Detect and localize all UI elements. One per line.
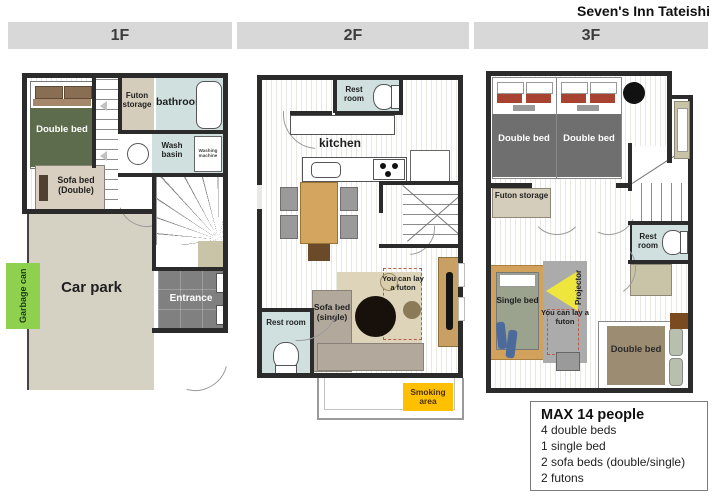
restroom-top-label: Rest room xyxy=(337,86,371,104)
wall xyxy=(628,260,690,264)
door-panel xyxy=(677,108,688,152)
spiral-stairs xyxy=(156,177,224,245)
wall xyxy=(333,80,337,113)
plan-1f: Futon storage bathroom Wash basin Washin… xyxy=(22,73,228,395)
futon-note-3f: You can lay a futon xyxy=(541,309,589,326)
car-park: Car park xyxy=(27,214,154,390)
round-side-table xyxy=(623,82,645,104)
restroom-2f-top: Rest room xyxy=(335,80,399,113)
wall xyxy=(458,75,463,378)
duvet-gray: Double bed xyxy=(557,114,621,177)
double-bed-left-label: Double bed xyxy=(492,134,556,145)
floorplan-screenshot: Seven's Inn Tateishi 1F 2F 3F Futon stor… xyxy=(0,0,720,498)
bathroom-room: bathroom xyxy=(156,78,223,130)
pillow xyxy=(669,328,683,356)
bathroom-label: bathroom xyxy=(156,97,200,109)
wall xyxy=(616,183,632,188)
entrance-label: Entrance xyxy=(158,293,224,304)
window xyxy=(458,297,465,321)
pillow xyxy=(497,82,524,94)
duvet-taupe: Double bed xyxy=(607,326,665,385)
wall xyxy=(152,328,228,333)
pillow xyxy=(499,274,536,287)
wall xyxy=(22,73,228,78)
sink-icon xyxy=(127,143,149,165)
burner-icon xyxy=(380,163,386,169)
bench-seat xyxy=(308,244,330,261)
futon-storage-3f-label: Futon storage xyxy=(493,192,550,201)
plan-2f: Rest room kitchen xyxy=(257,75,463,378)
chair xyxy=(340,187,358,211)
shoe-closet xyxy=(198,241,223,269)
burner-icon xyxy=(392,163,398,169)
window xyxy=(257,185,262,209)
wall xyxy=(486,183,532,188)
wall xyxy=(399,80,403,113)
wall xyxy=(92,78,96,168)
washing-machine-label: Washing machine xyxy=(195,148,221,158)
double-bed-label: Double bed xyxy=(30,125,94,136)
headboard-cabinet xyxy=(670,313,688,329)
info-line: 2 sofa beds (double/single) xyxy=(541,455,697,471)
chair-blue xyxy=(505,330,517,359)
wall xyxy=(379,181,383,213)
futon-storage-label: Futon storage xyxy=(120,92,154,110)
car-park-label: Car park xyxy=(29,280,154,297)
restroom-3f: Rest room xyxy=(630,223,692,264)
pillow xyxy=(64,86,92,99)
wall xyxy=(118,130,223,134)
round-table xyxy=(355,296,396,337)
kitchen-island xyxy=(302,157,407,182)
washroom: Wash basin Washing machine xyxy=(122,134,223,173)
entrance: Entrance xyxy=(158,269,224,329)
header-2f: 2F xyxy=(237,22,469,49)
wall xyxy=(257,75,463,80)
plan-3f: Double bed Double bed Futon storage Rest… xyxy=(486,71,693,393)
pillow-red xyxy=(590,94,615,103)
single-bed-label: Single bed xyxy=(491,296,544,305)
wall xyxy=(223,73,228,333)
garbage-can-tag: Garbage can xyxy=(6,263,40,329)
restroom-3f-label: Rest room xyxy=(632,233,664,251)
futon-storage-room: Futon storage xyxy=(120,78,154,130)
sofa-bed-single-chaise xyxy=(317,343,424,371)
info-line: 1 single bed xyxy=(541,439,697,455)
wall xyxy=(118,78,122,133)
balcony-door-closet xyxy=(674,101,690,159)
double-bed-bottom-label: Double bed xyxy=(607,344,665,354)
stair-arrow-icon xyxy=(100,101,107,111)
wall xyxy=(379,244,463,248)
page-title: Seven's Inn Tateishi xyxy=(577,3,710,19)
wall xyxy=(335,111,403,115)
smoking-area-tag: Smoking area xyxy=(403,383,453,411)
wash-basin-label: Wash basin xyxy=(152,142,192,160)
smoking-area-label: Smoking area xyxy=(408,388,448,407)
pillow xyxy=(526,82,553,94)
stairs-3f xyxy=(632,183,687,221)
stove xyxy=(373,159,405,180)
double-bed-right-label: Double bed xyxy=(557,134,621,145)
bed-tray xyxy=(577,105,599,111)
bed-runner xyxy=(33,99,91,106)
wall xyxy=(152,267,224,271)
chair xyxy=(340,215,358,239)
single-bed: Single bed xyxy=(490,265,545,360)
kitchen-counter xyxy=(290,115,395,135)
sofa-bed-double-label: Sofa bed (Double) xyxy=(50,176,102,196)
dining-table xyxy=(300,182,338,244)
pillow xyxy=(35,86,63,99)
wall xyxy=(22,209,156,214)
pillow xyxy=(561,82,588,94)
double-bed-3f-bottom: Double bed xyxy=(598,321,690,390)
double-bed-3f-left: Double bed xyxy=(492,77,558,179)
duvet-gray: Double bed xyxy=(492,114,556,177)
wall xyxy=(22,73,27,213)
wall xyxy=(257,75,262,378)
pillow-red xyxy=(561,94,586,103)
header-3f: 3F xyxy=(474,22,708,49)
pillow-red xyxy=(526,94,551,103)
futon-storage-3f: Futon storage xyxy=(492,188,551,218)
wall xyxy=(486,71,672,76)
ottoman xyxy=(556,352,580,371)
garbage-can-label: Garbage can xyxy=(18,266,28,326)
window xyxy=(458,263,465,287)
wall xyxy=(486,71,491,393)
tv-icon xyxy=(446,272,453,330)
duvet-green: Double bed xyxy=(30,108,94,167)
floor-cushion xyxy=(403,301,421,319)
closet-3f xyxy=(630,264,672,296)
pillow-red xyxy=(497,94,522,103)
pillow xyxy=(669,358,683,386)
sofa-cushion xyxy=(39,175,48,201)
futon-note-2f: You can lay a futon xyxy=(382,275,424,292)
sofa-bed-double: Sofa bed (Double) xyxy=(35,165,105,212)
capacity-info-box: MAX 14 people 4 double beds 1 single bed… xyxy=(530,401,708,491)
chair xyxy=(280,187,298,211)
header-1f: 1F xyxy=(8,22,232,49)
bed-tray xyxy=(513,105,535,111)
info-line: 4 double beds xyxy=(541,423,697,439)
chair xyxy=(280,215,298,239)
stair-arrow-icon xyxy=(100,151,107,161)
kitchen-label: kitchen xyxy=(287,137,393,150)
pillow xyxy=(590,82,617,94)
wall xyxy=(118,173,223,177)
burner-icon xyxy=(385,171,391,177)
wall xyxy=(486,388,693,393)
wall xyxy=(667,71,672,163)
wall xyxy=(152,177,156,271)
fridge xyxy=(410,150,450,182)
wall xyxy=(379,181,463,185)
toilet-tank xyxy=(680,231,688,254)
info-line: 2 futons xyxy=(541,471,697,487)
kitchen-sink xyxy=(311,162,341,178)
double-bed-3f-right: Double bed xyxy=(556,77,622,179)
double-bed-1f: Double bed xyxy=(30,81,96,169)
bathtub xyxy=(196,81,222,129)
info-title: MAX 14 people xyxy=(541,407,697,423)
washing-machine: Washing machine xyxy=(194,136,222,172)
wall xyxy=(628,221,690,225)
